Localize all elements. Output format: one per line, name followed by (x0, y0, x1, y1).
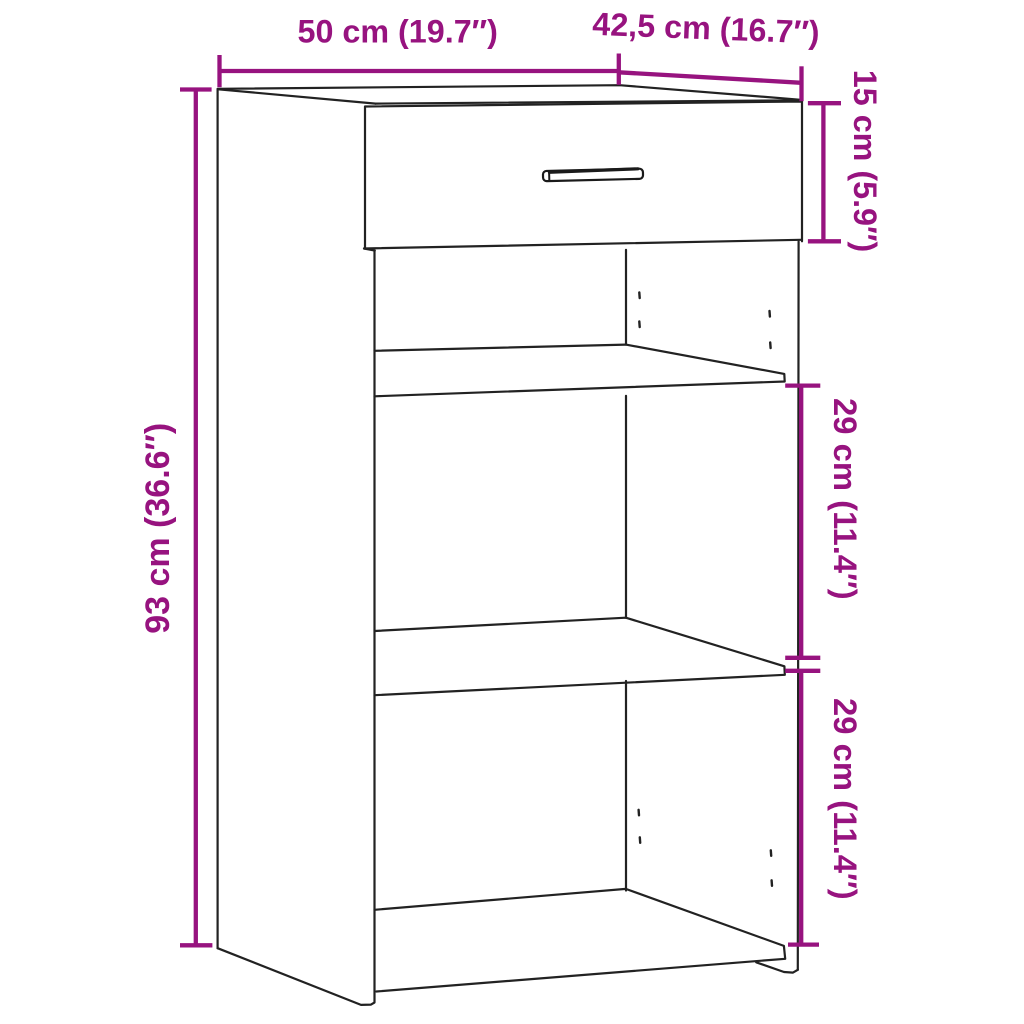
svg-text:29 cm (11.4″): 29 cm (11.4″) (827, 398, 864, 600)
svg-text:42,5 cm (16.7″): 42,5 cm (16.7″) (592, 6, 821, 51)
svg-text:50 cm (19.7″): 50 cm (19.7″) (298, 14, 498, 50)
svg-text:15 cm (5.9″): 15 cm (5.9″) (847, 70, 883, 252)
svg-text:93 cm (36.6″): 93 cm (36.6″) (139, 423, 177, 634)
svg-text:29 cm (11.4″): 29 cm (11.4″) (827, 698, 864, 900)
